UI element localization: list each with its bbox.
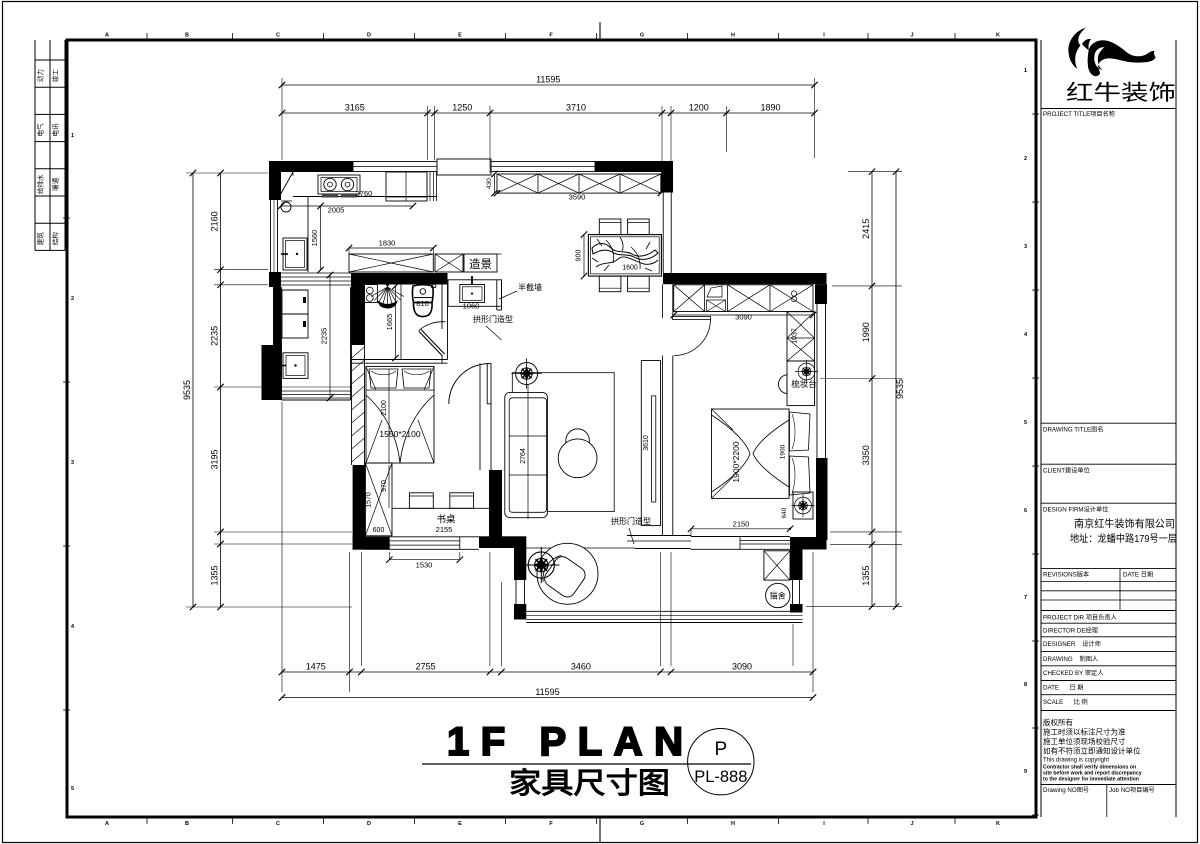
svg-text:1530: 1530	[416, 561, 433, 570]
svg-text:PL-888: PL-888	[694, 768, 747, 786]
svg-text:C: C	[276, 33, 280, 39]
svg-text:430: 430	[486, 178, 493, 189]
svg-text:600: 600	[373, 527, 385, 534]
svg-text:家具尺寸图: 家具尺寸图	[509, 766, 670, 800]
svg-text:南京红牛装饰有限公司: 南京红牛装饰有限公司	[1074, 517, 1175, 530]
svg-text:2415: 2415	[861, 219, 871, 239]
svg-text:1990: 1990	[861, 322, 871, 342]
svg-text:建筑: 建筑	[36, 232, 45, 246]
svg-text:CLIENT建设单位: CLIENT建设单位	[1043, 467, 1090, 475]
svg-text:K: K	[996, 33, 1000, 39]
svg-text:半截墙: 半截墙	[518, 282, 542, 292]
svg-text:9: 9	[1024, 769, 1027, 775]
svg-text:2: 2	[71, 296, 74, 302]
svg-text:B: B	[185, 33, 189, 39]
svg-text:结构: 结构	[51, 232, 60, 246]
svg-text:3590: 3590	[569, 193, 586, 202]
svg-text:红牛装饰: 红牛装饰	[1066, 81, 1176, 105]
svg-text:施工单位须现场校验尺寸: 施工单位须现场校验尺寸	[1043, 736, 1126, 746]
svg-text:K: K	[996, 821, 1000, 827]
svg-text:11595: 11595	[536, 75, 560, 85]
svg-text:版权所有: 版权所有	[1043, 717, 1073, 727]
svg-text:2760: 2760	[356, 189, 373, 198]
svg-text:1900*2200: 1900*2200	[731, 441, 741, 482]
svg-text:PROJECT DIR 项目负责人: PROJECT DIR 项目负责人	[1043, 614, 1117, 622]
svg-text:暖通: 暖通	[51, 177, 60, 191]
svg-text:2: 2	[1024, 156, 1027, 162]
svg-text:1890: 1890	[760, 103, 780, 113]
svg-text:A: A	[105, 821, 109, 827]
svg-text:3090: 3090	[732, 662, 752, 672]
svg-text:1900: 1900	[780, 444, 787, 459]
svg-text:3: 3	[71, 460, 74, 466]
svg-text:2235: 2235	[320, 328, 329, 345]
svg-text:1355: 1355	[861, 566, 871, 586]
svg-text:H: H	[731, 33, 735, 39]
svg-text:3610: 3610	[643, 435, 650, 451]
svg-text:810: 810	[416, 299, 429, 308]
svg-text:书桌: 书桌	[436, 514, 456, 526]
svg-text:7: 7	[1024, 595, 1027, 601]
svg-text:梳妆台: 梳妆台	[791, 379, 817, 389]
svg-text:2160: 2160	[210, 211, 220, 231]
svg-text:2755: 2755	[416, 662, 436, 672]
svg-text:E: E	[458, 821, 462, 827]
svg-text:PROJECT TITLE项目名称: PROJECT TITLE项目名称	[1043, 110, 1115, 118]
svg-text:Drawing NO图号: Drawing NO图号	[1043, 787, 1089, 794]
svg-text:900: 900	[576, 250, 583, 262]
svg-text:J: J	[910, 821, 913, 827]
svg-text:REVISIONS版本: REVISIONS版本	[1043, 571, 1089, 579]
svg-text:2764: 2764	[520, 448, 527, 464]
svg-text:E: E	[458, 33, 462, 39]
svg-text:拱形门造型: 拱形门造型	[611, 516, 651, 526]
svg-text:拱形门造型: 拱形门造型	[473, 314, 513, 324]
svg-text:2155: 2155	[436, 525, 453, 534]
svg-text:DESIGNER 设计师: DESIGNER 设计师	[1043, 640, 1101, 648]
svg-text:1060: 1060	[463, 302, 480, 311]
svg-text:3165: 3165	[345, 103, 365, 113]
svg-text:8: 8	[1024, 682, 1027, 688]
svg-text:DATE 日 期: DATE 日 期	[1043, 684, 1083, 692]
svg-text:1: 1	[1024, 68, 1027, 74]
svg-text:B: B	[185, 821, 189, 827]
svg-text:竣工: 竣工	[51, 69, 60, 83]
svg-text:1570: 1570	[366, 492, 373, 508]
svg-text:1600: 1600	[622, 265, 638, 272]
svg-text:动力: 动力	[36, 69, 45, 82]
svg-text:造景: 造景	[469, 257, 492, 271]
svg-text:2005: 2005	[328, 206, 345, 215]
svg-text:This drawing is copyright: This drawing is copyright	[1043, 758, 1109, 764]
svg-text:to the designer for immediate: to the designer for immediate attention	[1043, 777, 1139, 783]
svg-text:1355: 1355	[210, 565, 220, 585]
svg-text:D: D	[367, 33, 371, 39]
svg-text:1475: 1475	[306, 662, 326, 672]
svg-text:DATE 日期: DATE 日期	[1123, 571, 1153, 579]
svg-text:G: G	[640, 33, 644, 39]
svg-text:1560: 1560	[310, 230, 319, 247]
svg-text:1550*2100: 1550*2100	[379, 429, 420, 439]
svg-text:P: P	[714, 739, 727, 760]
svg-text:H: H	[731, 821, 735, 827]
svg-text:1: 1	[71, 133, 74, 139]
svg-text:3195: 3195	[210, 449, 220, 469]
svg-text:CHECKED BY 审定人: CHECKED BY 审定人	[1043, 669, 1103, 677]
svg-text:DESIGN FIRM设计单位: DESIGN FIRM设计单位	[1043, 506, 1108, 514]
svg-text:J: J	[910, 33, 913, 39]
svg-text:Job NO项目编号: Job NO项目编号	[1109, 786, 1155, 794]
svg-text:电气: 电气	[36, 123, 45, 137]
svg-text:电讯: 电讯	[51, 123, 60, 137]
svg-text:2150: 2150	[733, 519, 750, 528]
svg-text:C: C	[276, 821, 280, 827]
svg-text:DRAWING TITLE图名: DRAWING TITLE图名	[1043, 426, 1104, 434]
svg-text:SCALE 比 例: SCALE 比 例	[1043, 698, 1088, 706]
svg-text:5: 5	[1024, 420, 1027, 426]
svg-text:G: G	[640, 821, 644, 827]
svg-text:2235: 2235	[210, 326, 220, 346]
svg-text:9535: 9535	[182, 380, 192, 400]
svg-text:6: 6	[1024, 508, 1027, 514]
svg-text:施工时须以标注尺寸为准: 施工时须以标注尺寸为准	[1043, 727, 1126, 737]
svg-text:11595: 11595	[535, 687, 559, 697]
svg-text:DRAWING 制图人: DRAWING 制图人	[1043, 655, 1098, 663]
svg-text:1037: 1037	[792, 328, 799, 344]
svg-text:DIRECTOR DE经理: DIRECTOR DE经理	[1043, 626, 1098, 634]
svg-text:1665: 1665	[385, 314, 394, 331]
svg-text:3090: 3090	[735, 313, 752, 322]
svg-text:如有不符须立即通知设计单位: 如有不符须立即通知设计单位	[1043, 746, 1141, 756]
svg-text:2100: 2100	[381, 400, 388, 416]
svg-text:5: 5	[71, 786, 74, 792]
svg-text:3710: 3710	[566, 103, 586, 113]
svg-text:1830: 1830	[379, 239, 396, 248]
svg-text:D: D	[367, 821, 371, 827]
svg-text:3: 3	[1024, 244, 1027, 250]
svg-text:3460: 3460	[571, 662, 591, 672]
svg-text:9535: 9535	[895, 379, 905, 399]
svg-text:给排水: 给排水	[36, 174, 45, 194]
svg-text:A: A	[105, 33, 109, 39]
svg-text:1250: 1250	[452, 103, 472, 113]
svg-text:地址：龙蟠中路179号一层: 地址：龙蟠中路179号一层	[1070, 532, 1177, 545]
svg-text:3350: 3350	[861, 445, 871, 465]
svg-text:640: 640	[781, 507, 788, 518]
svg-text:猫舍: 猫舍	[770, 591, 786, 601]
svg-text:1200: 1200	[689, 103, 709, 113]
